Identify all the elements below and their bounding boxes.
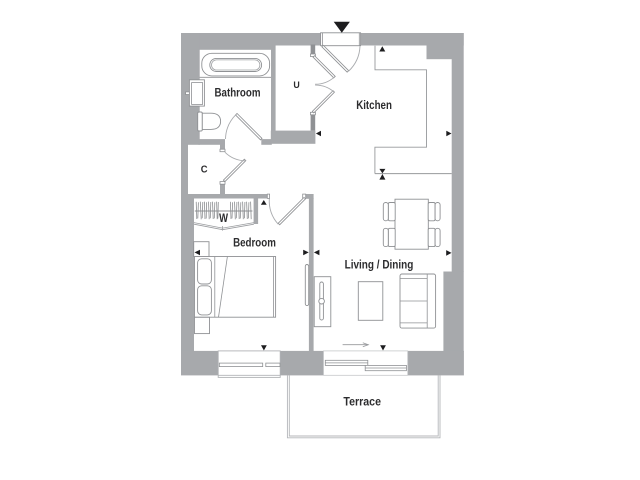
svg-text:C: C xyxy=(201,165,208,176)
svg-text:Bedroom: Bedroom xyxy=(233,237,276,250)
svg-text:Bathroom: Bathroom xyxy=(215,87,261,100)
svg-text:Living / Dining: Living / Dining xyxy=(345,259,414,272)
svg-text:Kitchen: Kitchen xyxy=(356,99,392,112)
svg-text:Terrace: Terrace xyxy=(343,395,381,408)
svg-text:W: W xyxy=(219,212,228,225)
svg-text:U: U xyxy=(293,80,299,90)
